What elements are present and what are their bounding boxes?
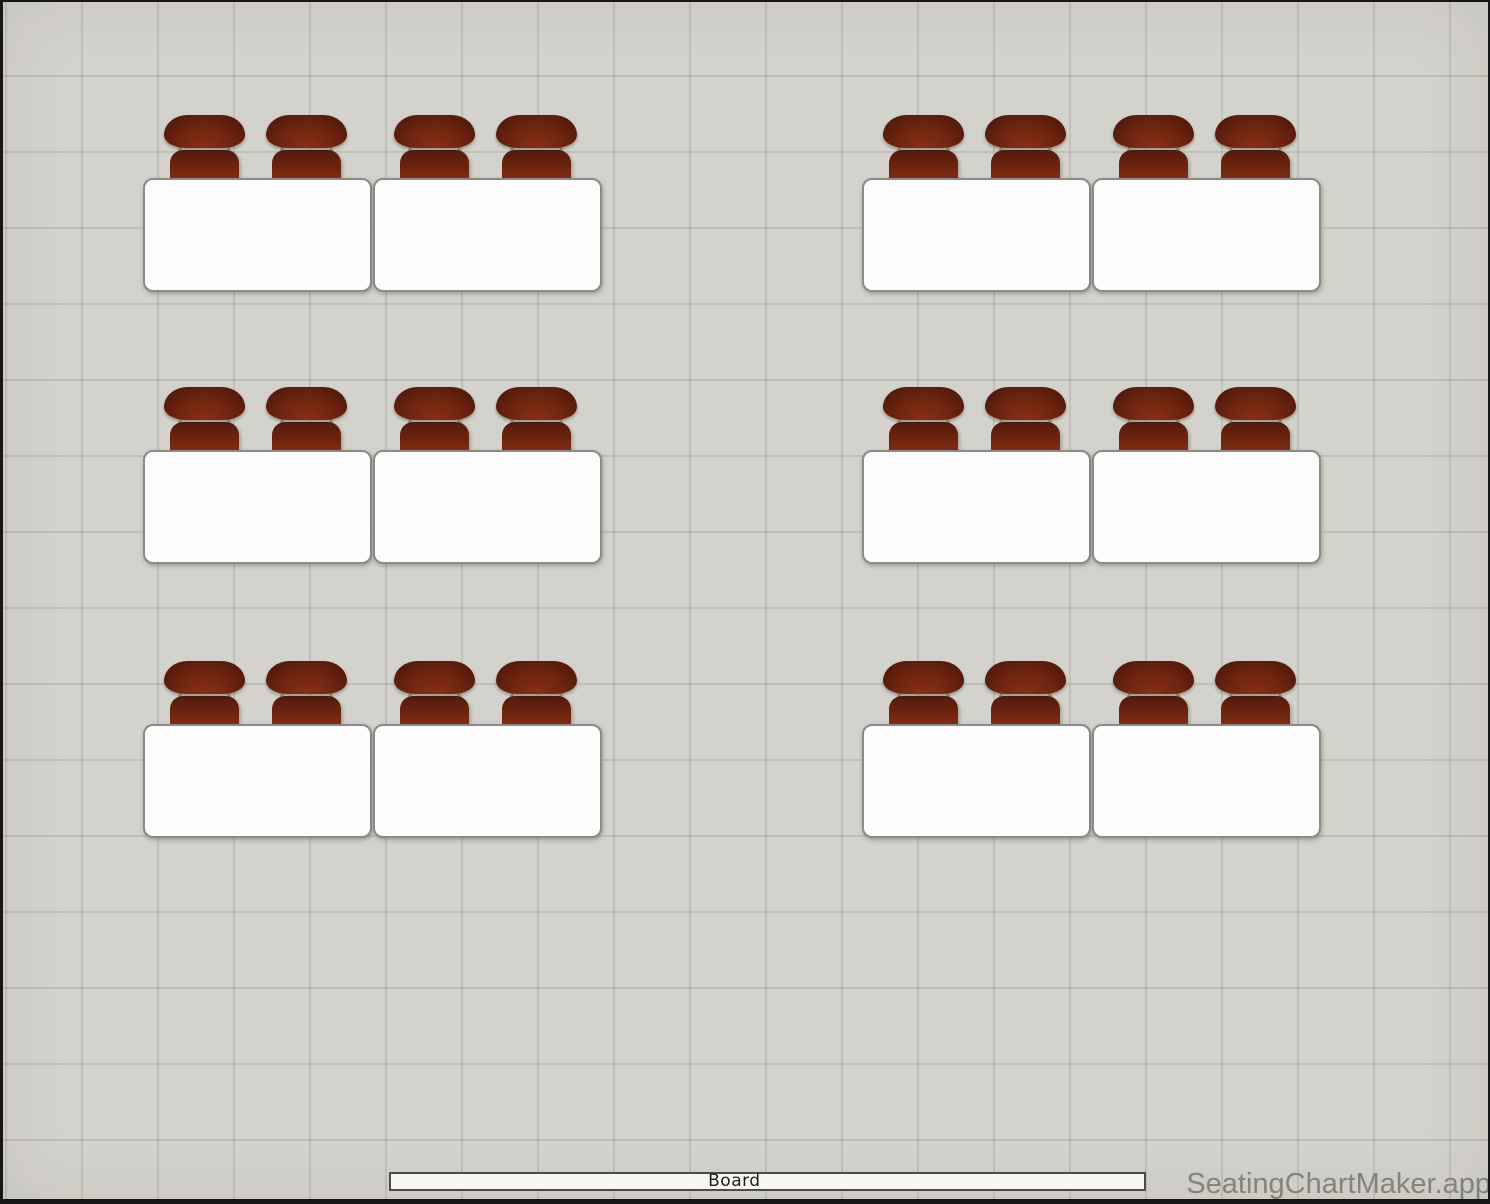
chair-back-icon (1215, 661, 1296, 694)
desk-unit[interactable] (862, 178, 1091, 292)
chair-back-icon (266, 387, 347, 420)
chair-back-icon (1113, 115, 1194, 148)
desk[interactable] (373, 724, 602, 838)
chair-back-icon (883, 115, 964, 148)
desk-unit[interactable] (143, 178, 372, 292)
desk-unit[interactable] (373, 724, 602, 838)
board-label: Board (708, 1171, 760, 1191)
chair-back-icon (394, 661, 475, 694)
chair-back-icon (883, 387, 964, 420)
desk[interactable] (143, 178, 372, 292)
desk-unit[interactable] (143, 450, 372, 564)
desk[interactable] (862, 724, 1091, 838)
desk[interactable] (373, 450, 602, 564)
chair-back-icon (1113, 661, 1194, 694)
chair-back-icon (394, 387, 475, 420)
chair-back-icon (496, 661, 577, 694)
desk-unit[interactable] (373, 450, 602, 564)
chair-back-icon (496, 115, 577, 148)
chair-back-icon (985, 661, 1066, 694)
chair-back-icon (1113, 387, 1194, 420)
watermark-text: SeatingChartMaker.app (1186, 1168, 1490, 1201)
board[interactable]: Board (389, 1172, 1146, 1191)
desk-unit[interactable] (373, 178, 602, 292)
desk[interactable] (1092, 178, 1321, 292)
desk-unit[interactable] (862, 450, 1091, 564)
desk[interactable] (373, 178, 602, 292)
chair-back-icon (883, 661, 964, 694)
desk[interactable] (1092, 450, 1321, 564)
chair-back-icon (164, 115, 245, 148)
desk-unit[interactable] (143, 724, 372, 838)
chair-back-icon (394, 115, 475, 148)
seating-chart-canvas: Board SeatingChartMaker.app (0, 0, 1490, 1204)
desk[interactable] (862, 178, 1091, 292)
desk-unit[interactable] (1092, 178, 1321, 292)
chair-back-icon (985, 387, 1066, 420)
desk-unit[interactable] (1092, 724, 1321, 838)
chair-back-icon (985, 115, 1066, 148)
desk[interactable] (143, 724, 372, 838)
chair-back-icon (1215, 115, 1296, 148)
desk[interactable] (143, 450, 372, 564)
chair-back-icon (1215, 387, 1296, 420)
chair-back-icon (164, 661, 245, 694)
chair-back-icon (496, 387, 577, 420)
desk-unit[interactable] (1092, 450, 1321, 564)
chair-back-icon (266, 661, 347, 694)
desk[interactable] (1092, 724, 1321, 838)
chair-back-icon (164, 387, 245, 420)
desk[interactable] (862, 450, 1091, 564)
chair-back-icon (266, 115, 347, 148)
desk-unit[interactable] (862, 724, 1091, 838)
